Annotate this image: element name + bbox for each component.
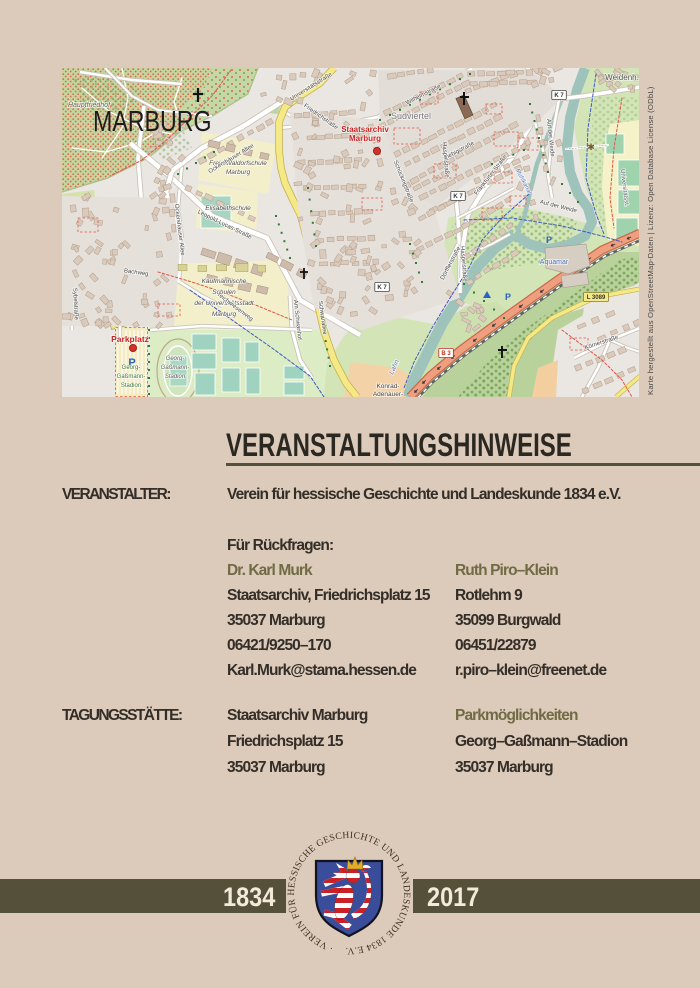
svg-text:K 7: K 7	[554, 93, 564, 99]
svg-text:Stadion: Stadion	[121, 383, 141, 389]
svg-text:✱: ✱	[587, 142, 595, 152]
svg-text:K 7: K 7	[453, 194, 463, 200]
svg-text:Georg-: Georg-	[122, 365, 141, 371]
svg-text:Hauptfriedhof: Hauptfriedhof	[68, 102, 111, 109]
svg-text:B 3: B 3	[441, 351, 451, 357]
svg-text:Konrad-: Konrad-	[376, 383, 399, 390]
svg-text:Sudviertel: Sudviertel	[391, 111, 431, 121]
svg-text:Weidenh.: Weidenh.	[605, 73, 639, 82]
svg-text:Georg-: Georg-	[166, 356, 185, 362]
svg-text:K 7: K 7	[377, 285, 387, 291]
svg-text:Stadion: Stadion	[165, 374, 186, 380]
svg-text:P: P	[546, 235, 552, 245]
svg-text:P: P	[505, 292, 511, 302]
svg-text:Elisabethschule: Elisabethschule	[205, 205, 251, 212]
svg-text:Parkplatz: Parkplatz	[111, 334, 149, 344]
svg-text:Gaßmann-: Gaßmann-	[161, 365, 190, 371]
svg-text:Marburg: Marburg	[226, 169, 251, 176]
svg-text:Gaßmann-: Gaßmann-	[117, 374, 146, 380]
svg-text:Aquamar: Aquamar	[540, 259, 569, 266]
svg-text:Staatsarchiv: Staatsarchiv	[341, 125, 389, 134]
svg-text:L 3089: L 3089	[587, 295, 606, 301]
svg-text:Kaufmännische: Kaufmännische	[202, 278, 247, 285]
svg-text:Marburg: Marburg	[349, 134, 381, 143]
svg-text:MARBURG: MARBURG	[93, 104, 212, 137]
svg-text:Marburg: Marburg	[212, 311, 237, 318]
svg-text:Adenauer-: Adenauer-	[373, 391, 403, 397]
